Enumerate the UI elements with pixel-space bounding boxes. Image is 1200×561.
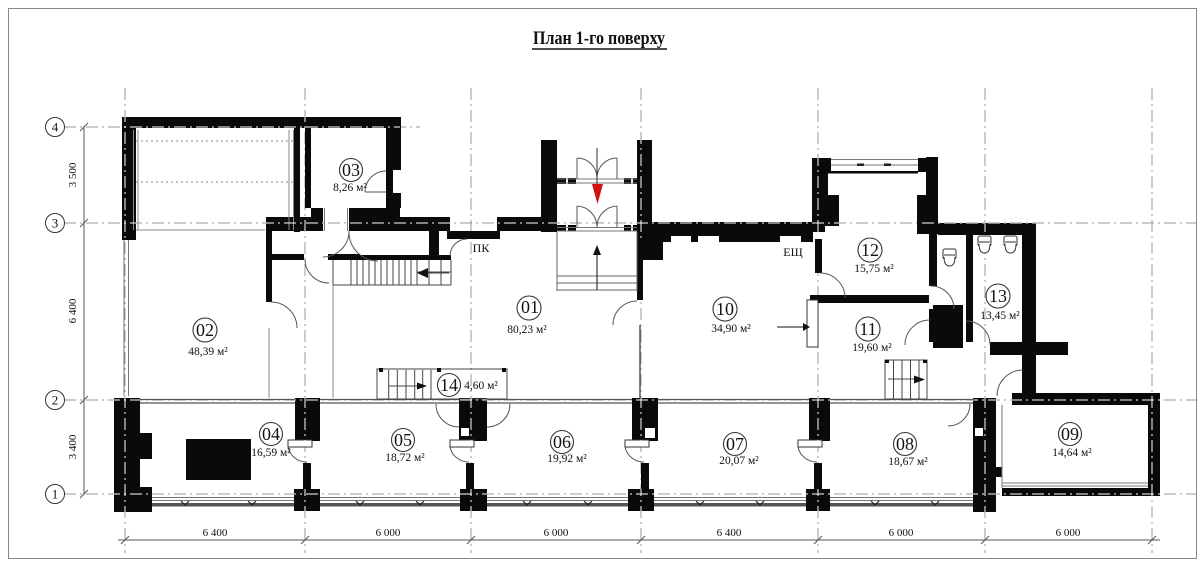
svg-text:14: 14 [440, 375, 458, 395]
svg-text:1: 1 [52, 487, 59, 502]
svg-text:15,75 м²: 15,75 м² [854, 263, 894, 275]
svg-text:2: 2 [52, 393, 59, 408]
svg-text:8,26 м²: 8,26 м² [333, 182, 367, 194]
svg-text:6 000: 6 000 [376, 527, 401, 539]
svg-text:03: 03 [342, 160, 360, 180]
svg-text:34,90 м²: 34,90 м² [711, 323, 751, 335]
svg-text:6 400: 6 400 [203, 527, 228, 539]
svg-text:6 000: 6 000 [544, 527, 569, 539]
svg-text:04: 04 [262, 424, 280, 444]
svg-text:19,92 м²: 19,92 м² [547, 453, 587, 465]
svg-text:6 000: 6 000 [1056, 527, 1081, 539]
svg-text:6 400: 6 400 [717, 527, 742, 539]
svg-text:План 1-го поверху: План 1-го поверху [533, 28, 665, 49]
svg-text:4,60 м²: 4,60 м² [464, 380, 498, 392]
svg-text:3: 3 [52, 216, 59, 231]
svg-text:07: 07 [726, 434, 744, 454]
svg-text:08: 08 [896, 434, 914, 454]
svg-text:ПК: ПК [473, 241, 491, 255]
svg-text:80,23 м²: 80,23 м² [507, 324, 547, 336]
svg-text:14,64 м²: 14,64 м² [1052, 447, 1092, 459]
svg-text:02: 02 [196, 320, 214, 340]
svg-text:6 000: 6 000 [889, 527, 914, 539]
svg-text:06: 06 [553, 432, 571, 452]
svg-text:ЕЩ: ЕЩ [783, 245, 802, 259]
svg-text:12: 12 [861, 240, 879, 260]
svg-text:3 400: 3 400 [67, 434, 79, 459]
svg-text:11: 11 [859, 319, 876, 339]
svg-text:10: 10 [716, 299, 734, 319]
svg-text:18,67 м²: 18,67 м² [888, 456, 928, 468]
svg-text:4: 4 [52, 120, 59, 135]
svg-text:3 500: 3 500 [67, 162, 79, 187]
svg-text:13: 13 [989, 286, 1007, 306]
svg-text:16,59 м²: 16,59 м² [251, 447, 291, 459]
svg-text:19,60 м²: 19,60 м² [852, 342, 892, 354]
svg-text:6 400: 6 400 [67, 298, 79, 323]
svg-text:13,45 м²: 13,45 м² [980, 310, 1020, 322]
svg-text:01: 01 [521, 297, 539, 317]
svg-text:48,39 м²: 48,39 м² [188, 346, 228, 358]
svg-text:20,07 м²: 20,07 м² [719, 455, 759, 467]
svg-text:09: 09 [1061, 424, 1079, 444]
svg-text:05: 05 [394, 430, 412, 450]
svg-text:18,72 м²: 18,72 м² [385, 452, 425, 464]
